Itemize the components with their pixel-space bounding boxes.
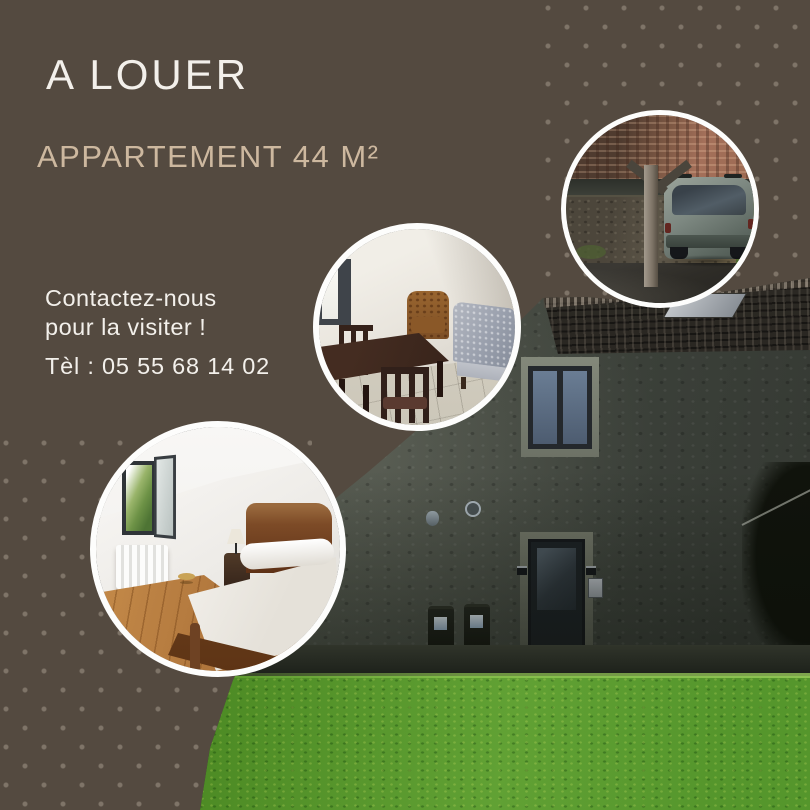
rental-poster: { "poster": { "title": "A LOUER", "subti…: [0, 0, 810, 810]
armchair: [407, 291, 449, 339]
sofa: [453, 301, 515, 369]
poster-subtitle: APPARTEMENT 44 M²: [37, 141, 379, 172]
photo-carport-circle: [561, 110, 759, 308]
photo-bedroom-circle: [90, 421, 346, 677]
contact-line-1: Contactez-nous: [45, 284, 270, 313]
photo-dining-room-circle: [313, 223, 521, 431]
contact-block: Contactez-nous pour la visiter ! Tèl : 0…: [45, 284, 270, 381]
carport-post: [644, 165, 658, 287]
contact-line-2: pour la visiter !: [45, 313, 270, 342]
open-window-sash: [154, 455, 176, 540]
chair: [381, 367, 429, 423]
stool: [178, 573, 195, 580]
poster-title: A LOUER: [46, 54, 249, 96]
dining-window: [319, 259, 351, 325]
gravel-ground: [566, 263, 754, 303]
phone-number: Tèl : 05 55 68 14 02: [45, 352, 270, 381]
